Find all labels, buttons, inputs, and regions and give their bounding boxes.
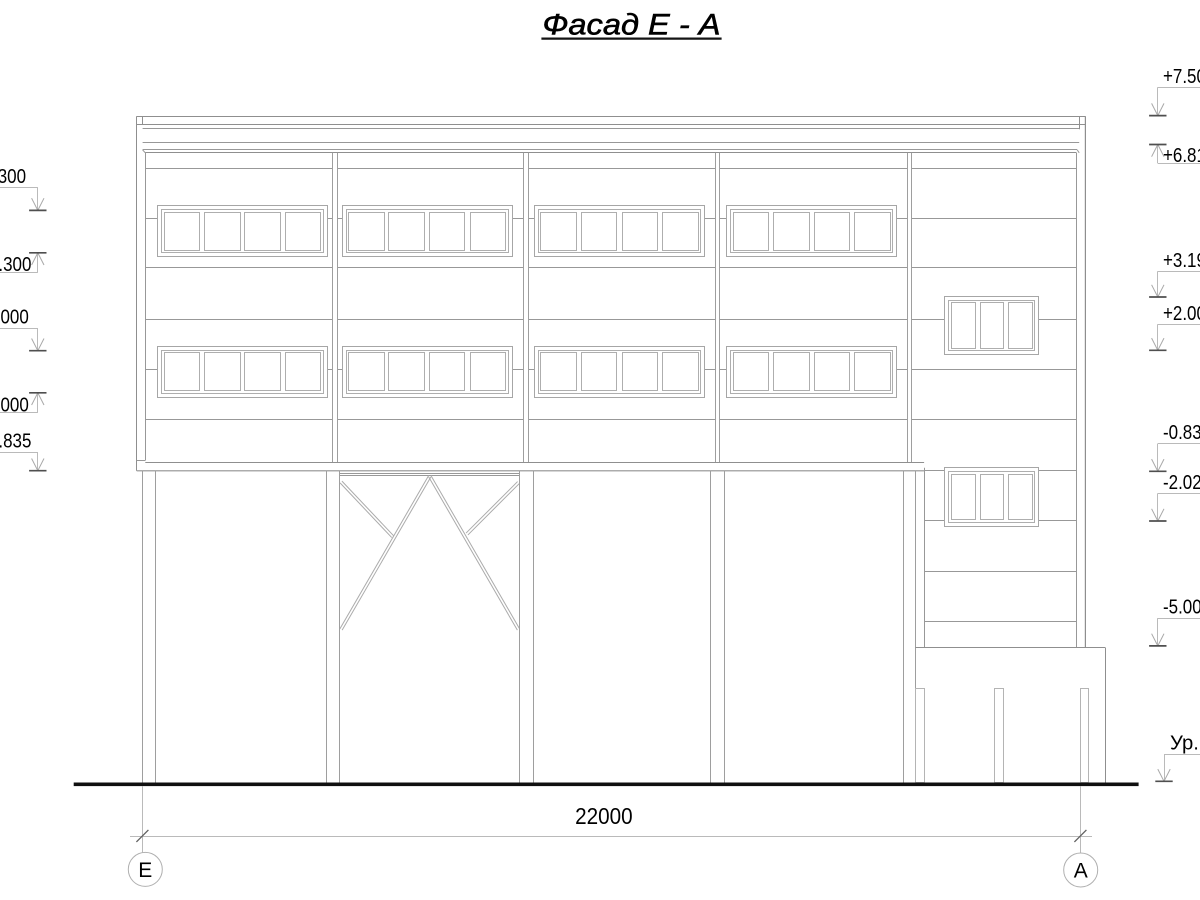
svg-text:Е: Е: [138, 859, 152, 882]
svg-text:+2.000: +2.000: [0, 307, 29, 329]
svg-text:-0.835: -0.835: [0, 431, 31, 453]
svg-text:+7.500: +7.500: [1163, 66, 1200, 88]
svg-text:+1.000: +1.000: [0, 394, 29, 416]
svg-text:+2.000: +2.000: [1163, 303, 1200, 325]
svg-text:22000: 22000: [575, 803, 633, 829]
svg-text:-0.835: -0.835: [1163, 422, 1200, 444]
svg-text:+4.300: +4.300: [0, 254, 31, 276]
svg-text:+6.810: +6.810: [1163, 145, 1200, 167]
svg-text:Ур. зем: Ур. зем: [1170, 733, 1200, 755]
svg-text:Фасад Е - А: Фасад Е - А: [543, 9, 721, 42]
svg-text:+5.300: +5.300: [0, 166, 26, 188]
svg-text:-2.020: -2.020: [1163, 472, 1200, 494]
svg-text:+3.190: +3.190: [1163, 250, 1200, 272]
svg-text:-5.000: -5.000: [1163, 597, 1200, 619]
svg-text:А: А: [1074, 860, 1088, 883]
